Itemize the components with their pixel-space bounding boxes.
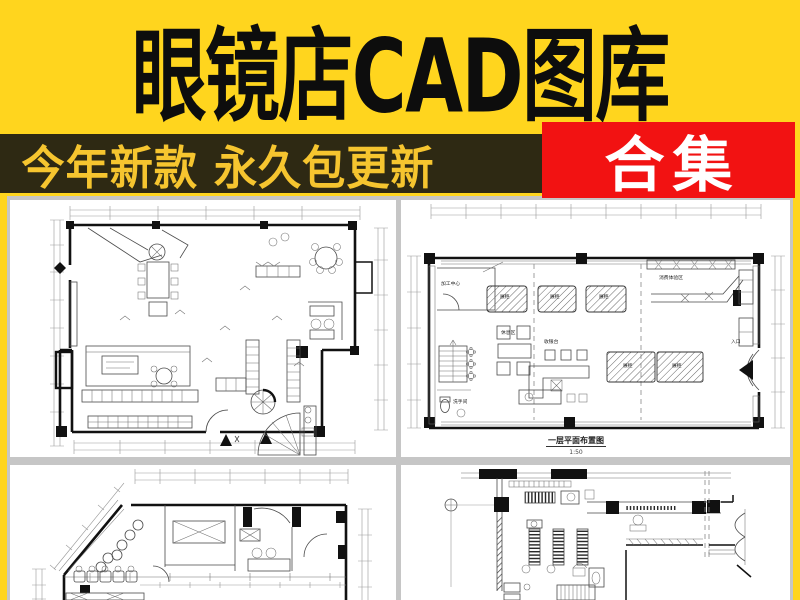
label-display-counter-1: 展柜 xyxy=(623,364,633,369)
collection-badge-text: 合集 xyxy=(597,117,741,204)
label-display-counter-2: 展柜 xyxy=(672,364,682,369)
label-display-case-1: 展柜 xyxy=(500,295,510,300)
collection-badge: 合集 xyxy=(542,122,795,198)
plan-caption-text: 一层平面布置图 xyxy=(546,436,606,447)
label-experience-area: 消费体验区 xyxy=(659,276,683,281)
floor-plan-c-drawing xyxy=(10,465,396,600)
plan-caption-scale: 1:50 xyxy=(569,449,582,456)
label-display-case-2: 展柜 xyxy=(550,295,560,300)
floor-plan-bottom-right xyxy=(401,465,790,600)
floor-plan-bottom-left xyxy=(10,465,396,600)
label-cashier: 收银台 xyxy=(544,340,558,345)
plan-caption: 一层平面布置图 1:50 xyxy=(521,436,631,457)
floor-plan-top-left xyxy=(10,200,396,457)
floor-plan-b-drawing xyxy=(401,200,790,457)
label-display-case-3: 展柜 xyxy=(599,295,609,300)
floor-plan-top-right: 加工中心 展柜 展柜 展柜 消费体验区 休息区 收银台 洗手间 入口 展柜 展柜… xyxy=(401,200,790,457)
main-title-banner: 眼镜店CAD图库 xyxy=(0,6,800,128)
floor-plan-a-drawing xyxy=(10,200,396,457)
promo-tagline-bar: 今年新款 永久包更新 xyxy=(0,134,542,193)
floor-plan-d-drawing xyxy=(401,465,790,600)
label-washroom: 洗手间 xyxy=(453,400,467,405)
label-processing-center: 加工中心 xyxy=(441,282,460,287)
page-title: 眼镜店CAD图库 xyxy=(132,0,669,141)
label-entrance: 入口 xyxy=(731,340,741,345)
promo-tagline-text: 今年新款 永久包更新 xyxy=(0,130,434,197)
label-rest-area: 休息区 xyxy=(501,331,515,336)
